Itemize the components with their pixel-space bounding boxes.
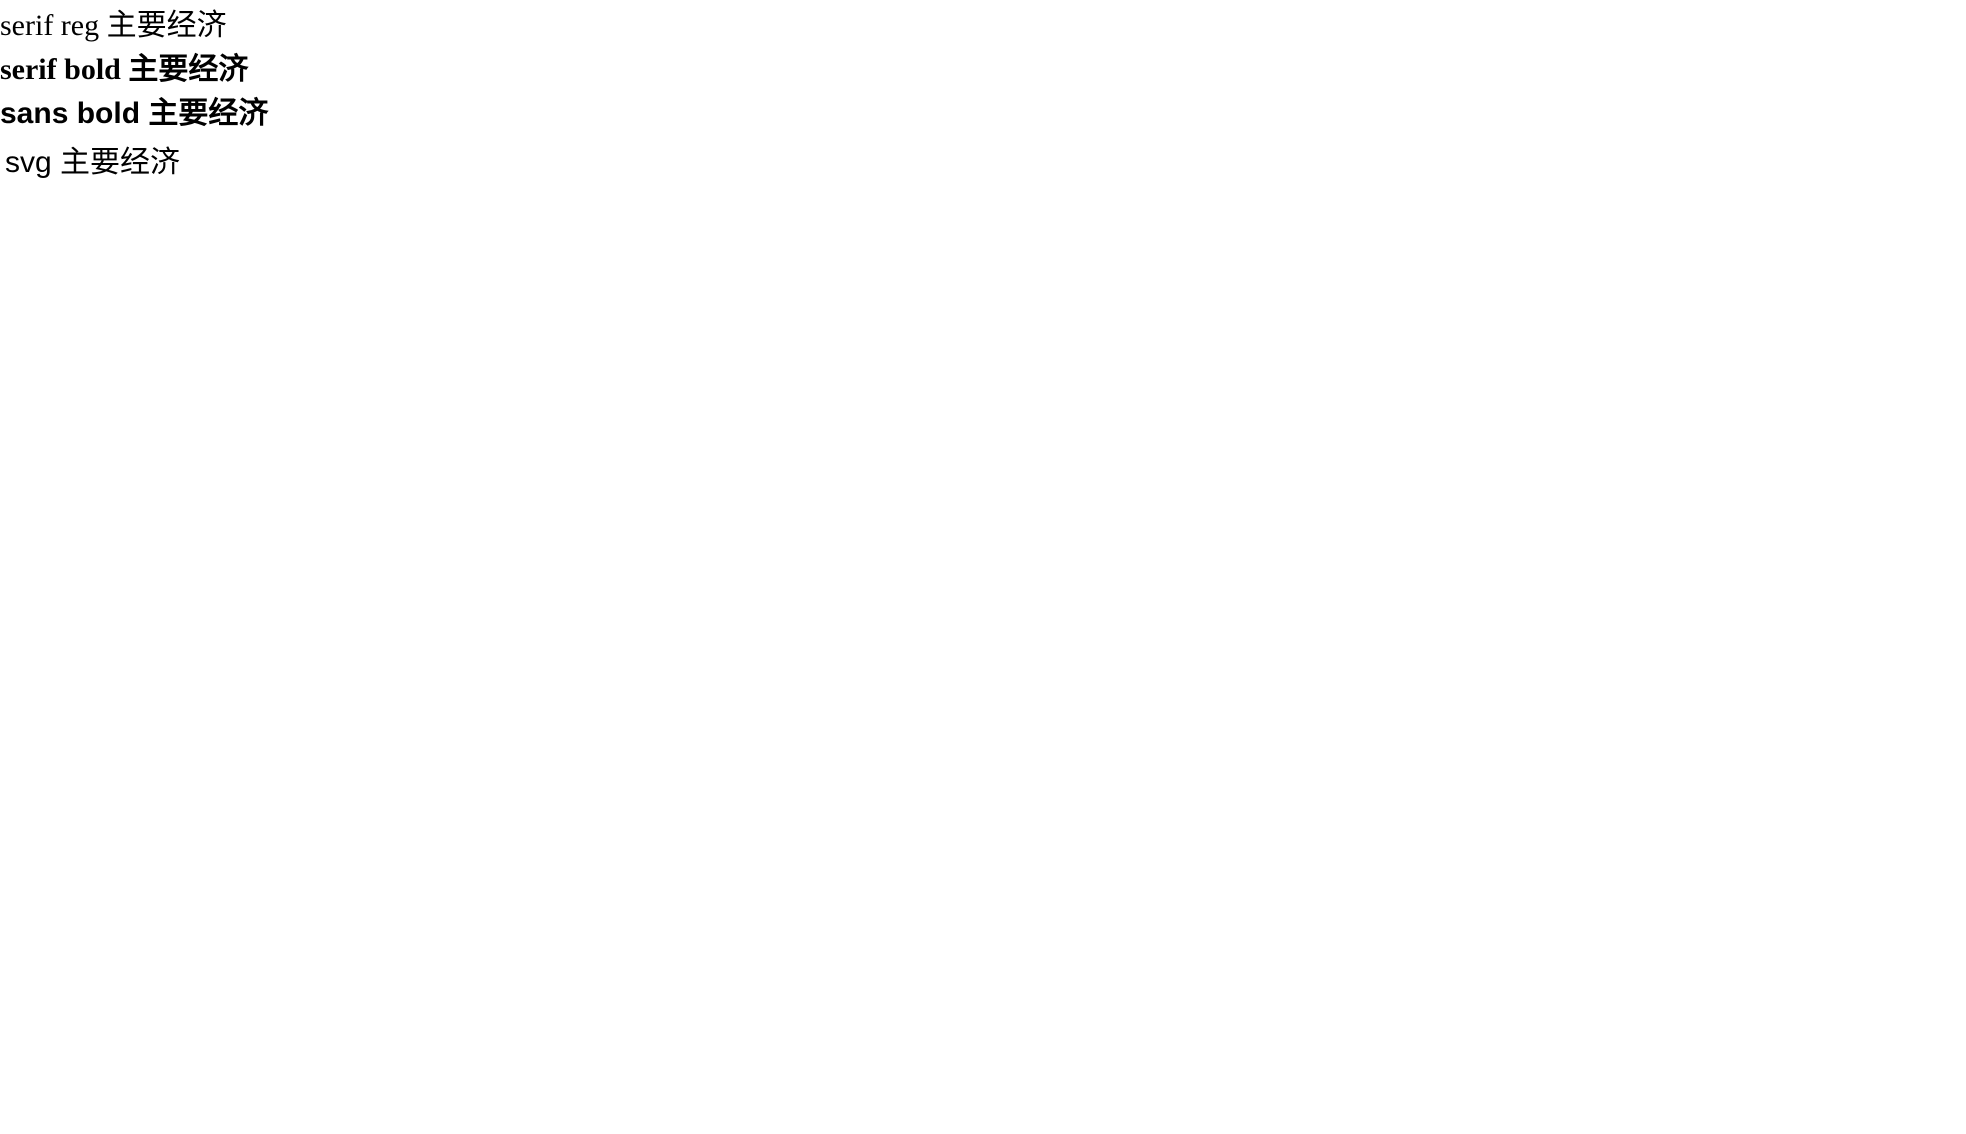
svg-text:svg 主要经济: svg 主要经济 — [5, 146, 180, 179]
